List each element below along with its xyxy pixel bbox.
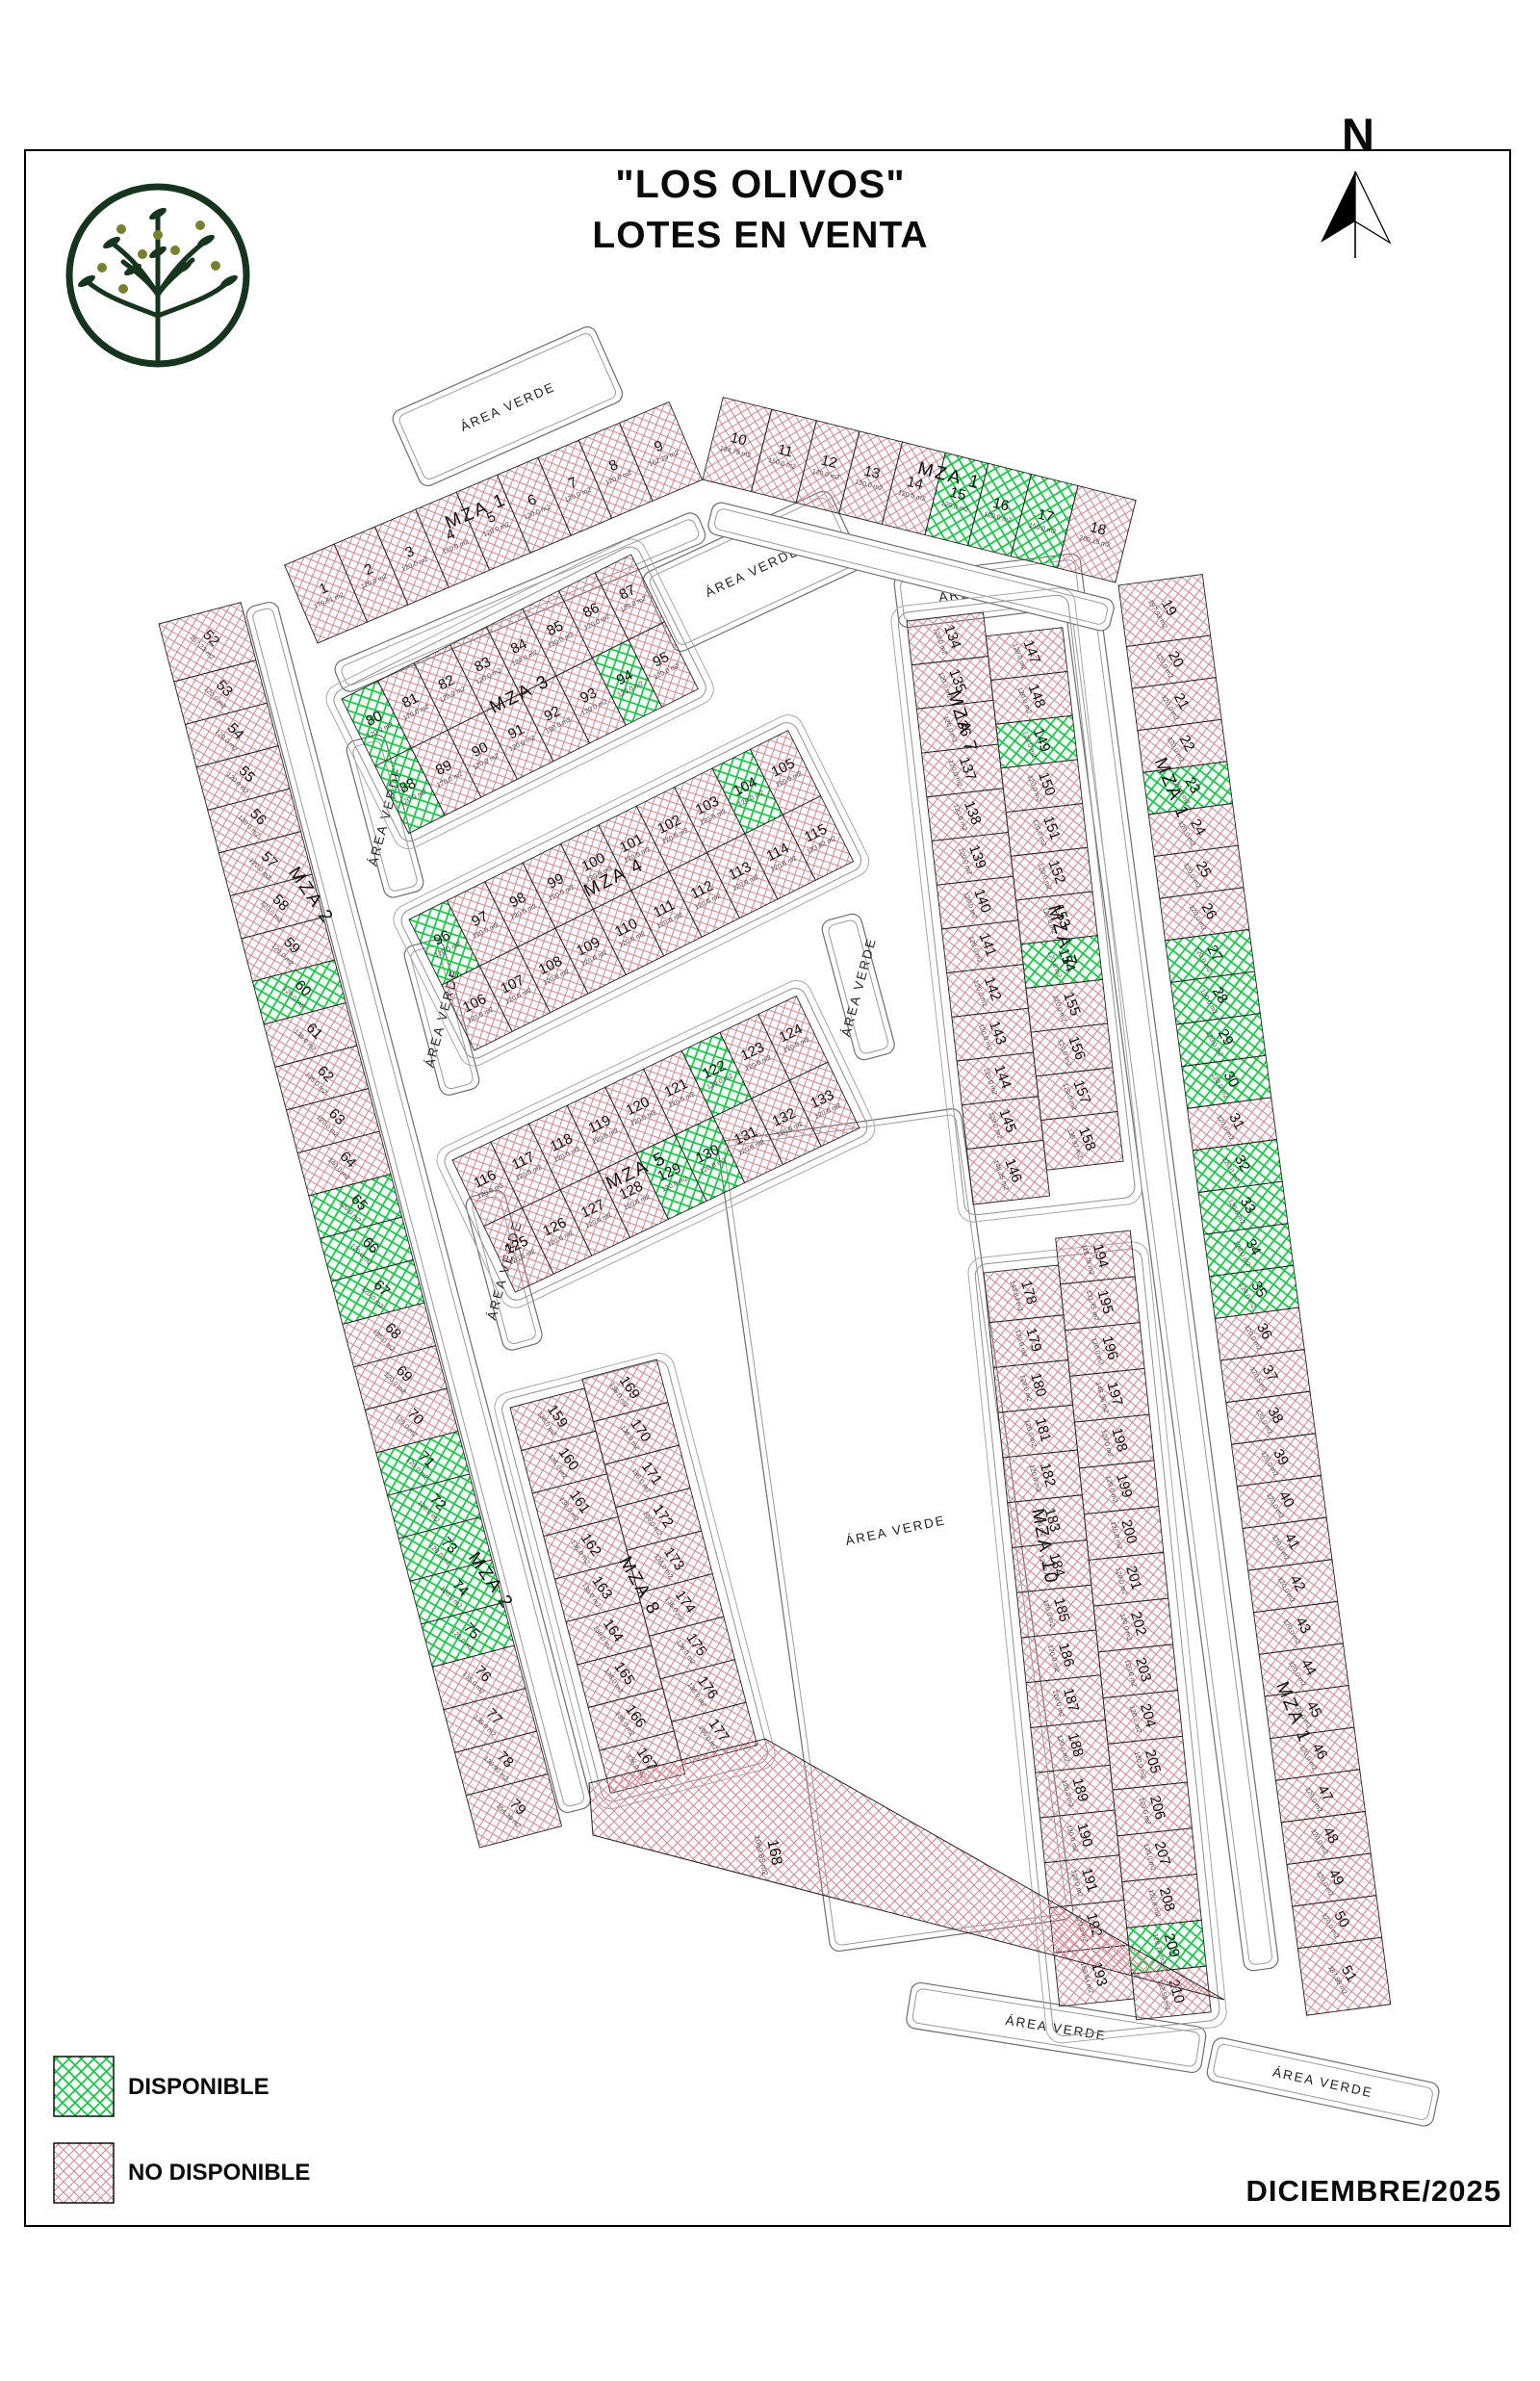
lot-180: 180120.0 m2 [993, 1359, 1072, 1412]
lot-191: 191120.0 m2 [1044, 1855, 1123, 1908]
lot-206: 206120.0 m2 [1113, 1782, 1193, 1836]
lot-203: 203120.0 m2 [1098, 1644, 1178, 1698]
lot-156: 156120.0 m2 [1031, 1023, 1113, 1076]
lot-142: 142120.0 m2 [947, 965, 1029, 1018]
lot-196: 196120.0 m2 [1065, 1323, 1145, 1377]
lot-158: 158135.97 m2 [1041, 1111, 1123, 1170]
lot-195: 195131.75 m2 [1061, 1277, 1141, 1331]
plan-sheet: ÁREA VERDEÁREA VERDEÁREA VERDEÁREA VERDE… [0, 0, 1540, 2381]
site-plan-svg: ÁREA VERDEÁREA VERDEÁREA VERDEÁREA VERDE… [0, 0, 1540, 2381]
lot-143: 143120.0 m2 [952, 1008, 1034, 1061]
legend-available-label: DISPONIBLE [128, 2074, 269, 2101]
lot-186: 186120.0 m2 [1021, 1630, 1100, 1683]
lot-189: 189120.0 m2 [1036, 1765, 1115, 1818]
lot-19: 19197.93 m2 [1118, 575, 1211, 647]
lot-185: 185120.0 m2 [1016, 1585, 1095, 1638]
lot-138: 138120.0 m2 [927, 789, 1009, 841]
lot-145: 145120.0 m2 [962, 1097, 1043, 1150]
lot-194: 194116.75 m2 [1056, 1230, 1136, 1284]
title-line2: LOTES EN VENTA [433, 215, 1088, 257]
lot-146: 146148.25 m2 [966, 1140, 1049, 1204]
legend-available-swatch [54, 2057, 114, 2116]
legend [54, 2057, 114, 2203]
north-arrow-icon [1321, 171, 1390, 258]
legend-unavailable-label: NO DISPONIBLE [128, 2160, 310, 2187]
olive-logo-icon [69, 187, 246, 364]
lot-134: 134120.0 m2 [907, 612, 988, 665]
lot-151: 151120.0 m2 [1006, 804, 1088, 857]
date-label: DICIEMBRE/2025 [1049, 2174, 1501, 2209]
area-verde: ÁREA VERDE [809, 909, 909, 1065]
lot-190: 190120.0 m2 [1039, 1810, 1118, 1863]
lot-200: 200120.0 m2 [1084, 1507, 1164, 1561]
lot-155: 155120.0 m2 [1026, 979, 1108, 1032]
lot-148: 148120.0 m2 [991, 671, 1073, 724]
lot-149: 149120.0 m2 [996, 715, 1078, 768]
lot-141: 141120.0 m2 [941, 920, 1023, 973]
lot-199: 199120.0 m2 [1079, 1461, 1159, 1514]
lot-51: 51187.85 m2 [1297, 1937, 1390, 2015]
area-verde: ÁREA VERDE [1205, 2036, 1440, 2128]
lot-208: 208120.0 m2 [1122, 1875, 1202, 1928]
lot-140: 140120.0 m2 [937, 876, 1018, 929]
lot-198: 198120.0 m2 [1074, 1414, 1154, 1468]
lot-197: 197148.36 m2 [1070, 1368, 1150, 1422]
lot-207: 207120.0 m2 [1117, 1828, 1197, 1882]
lot-157: 157120.0 m2 [1036, 1068, 1117, 1121]
legend-unavailable-swatch [54, 2143, 114, 2203]
lot-150: 150120.0 m2 [1001, 760, 1083, 813]
lot-181: 181120.0 m2 [998, 1405, 1077, 1458]
lot-139: 139120.0 m2 [932, 832, 1014, 885]
lot-201: 201120.0 m2 [1089, 1552, 1168, 1606]
lot-179: 179120.0 m2 [988, 1315, 1067, 1368]
north-label: N [1329, 108, 1387, 161]
lot-144: 144120.0 m2 [957, 1052, 1039, 1105]
lot-152: 152120.0 m2 [1011, 847, 1092, 900]
title-line1: "LOS OLIVOS" [433, 162, 1088, 207]
lot-205: 205120.0 m2 [1108, 1736, 1188, 1790]
lot-188: 188120.0 m2 [1031, 1720, 1110, 1773]
lot-202: 202120.0 m2 [1093, 1598, 1173, 1652]
page-title: "LOS OLIVOS" LOTES EN VENTA [433, 162, 1088, 257]
lot-204: 204120.0 m2 [1103, 1691, 1183, 1745]
lot-147: 147120.0 m2 [986, 628, 1067, 681]
lot-178: 178143.84 m2 [984, 1265, 1064, 1323]
lot-187: 187120.0 m2 [1026, 1675, 1105, 1728]
lot-182: 182120.0 m2 [1003, 1450, 1082, 1503]
